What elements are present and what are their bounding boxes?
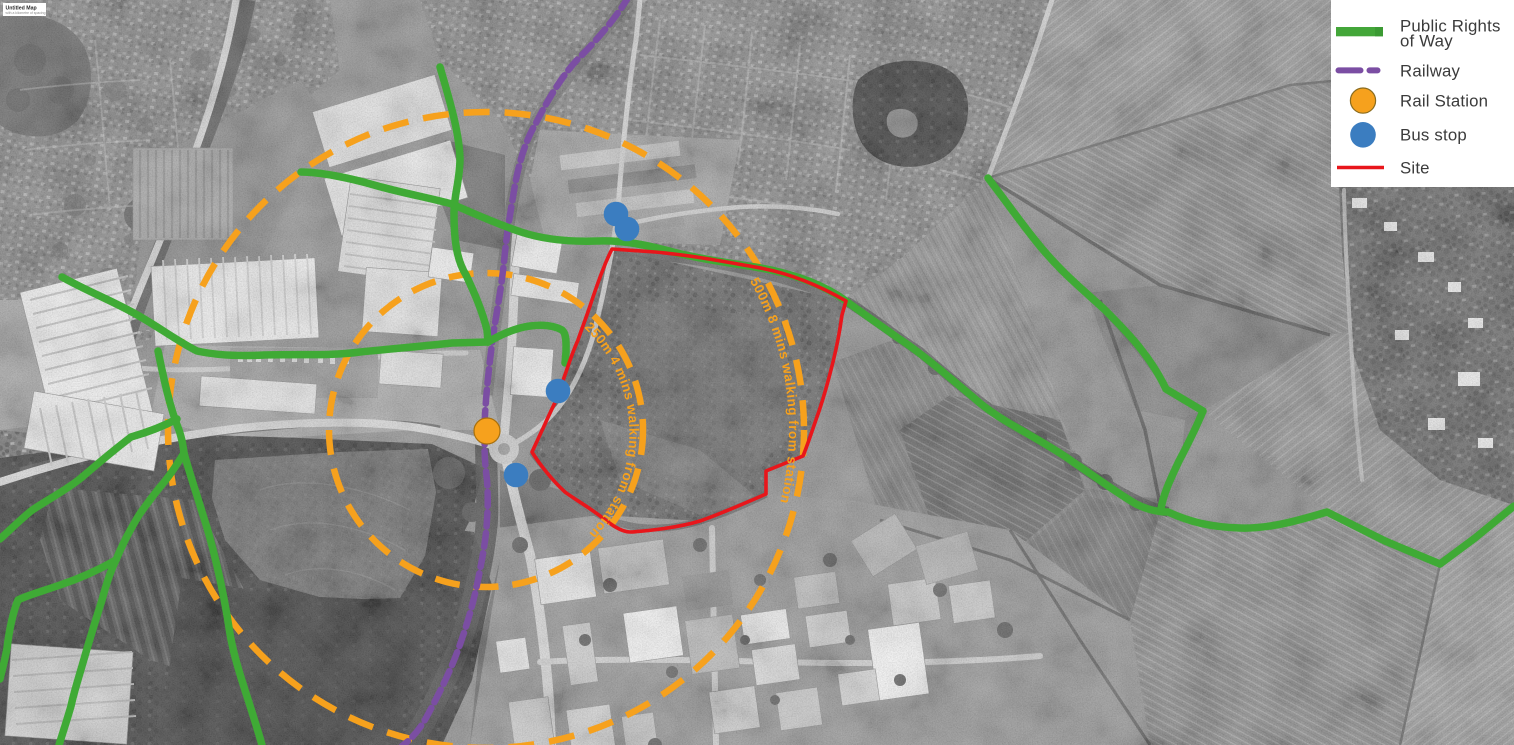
svg-text:of Way: of Way [1400,32,1453,51]
svg-text:Site: Site [1400,159,1430,178]
svg-text:with a kilometre of spacing: with a kilometre of spacing [6,11,46,15]
svg-text:Rail Station: Rail Station [1400,92,1488,111]
svg-text:Railway: Railway [1400,62,1461,81]
svg-text:Bus stop: Bus stop [1400,126,1467,145]
